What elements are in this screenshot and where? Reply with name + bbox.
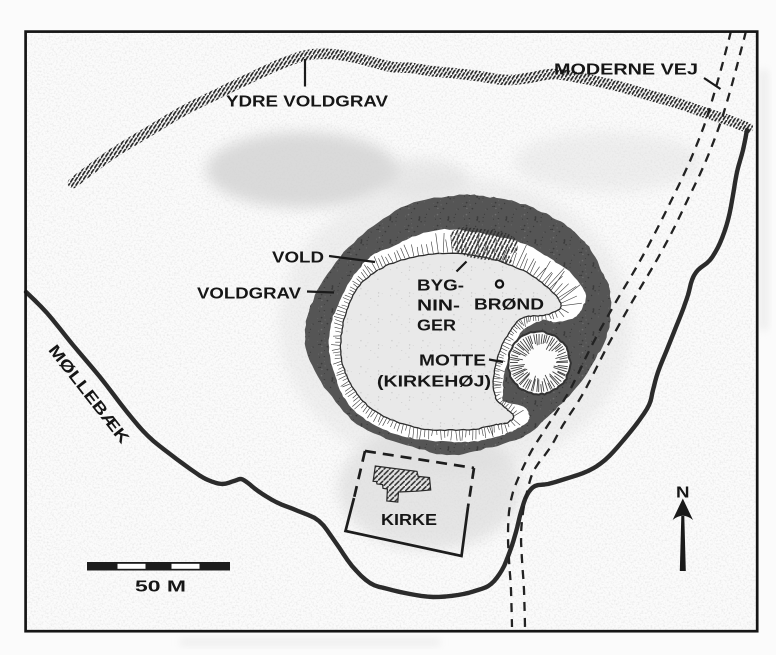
svg-text:BYG-: BYG- xyxy=(417,278,464,295)
svg-text:YDRE VOLDGRAV: YDRE VOLDGRAV xyxy=(226,94,388,111)
svg-text:(KIRKEHØJ): (KIRKEHØJ) xyxy=(377,374,491,391)
svg-text:VOLD: VOLD xyxy=(272,250,324,267)
svg-text:50 M: 50 M xyxy=(135,579,186,596)
svg-text:NIN-: NIN- xyxy=(417,298,460,315)
svg-text:MODERNE VEJ: MODERNE VEJ xyxy=(554,62,698,79)
svg-text:BRØND: BRØND xyxy=(474,297,544,314)
svg-text:VOLDGRAV: VOLDGRAV xyxy=(197,286,301,303)
svg-text:GER: GER xyxy=(417,318,457,335)
svg-text:KIRKE: KIRKE xyxy=(381,512,437,529)
svg-text:MOTTE: MOTTE xyxy=(419,353,486,370)
